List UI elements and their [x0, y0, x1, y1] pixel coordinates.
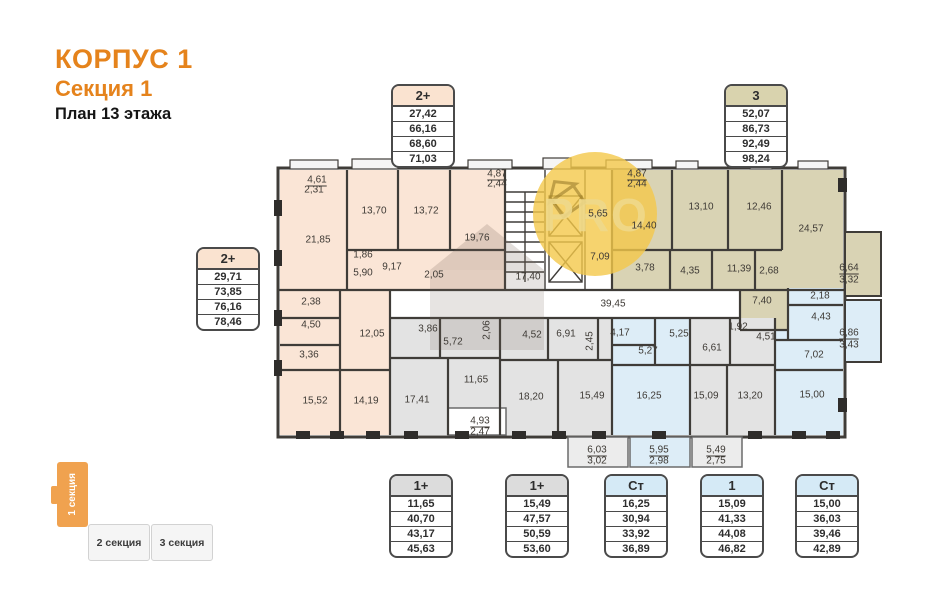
room-area-label: 2,47 — [470, 427, 490, 438]
room-area-label: 3,43 — [839, 340, 859, 351]
room-area-label: 7,40 — [752, 296, 772, 307]
room-area-label: 3,78 — [635, 263, 655, 274]
apartment-box-1: 1 15,09 41,33 44,08 46,82 — [700, 474, 764, 558]
section-nav-item-3[interactable]: 3 секция — [151, 524, 213, 561]
room-area-label: 24,57 — [798, 224, 823, 235]
area-value: 71,03 — [393, 152, 453, 166]
room-area-label: 4,51 — [756, 332, 776, 343]
area-value: 41,33 — [702, 512, 762, 527]
room-area-label: 6,61 — [702, 343, 722, 354]
room-area-label: 9,17 — [382, 262, 402, 273]
room-area-label: 5,95 — [649, 445, 669, 456]
room-area-label: 2,06 — [482, 320, 493, 340]
title-block: КОРПУС 1 Секция 1 План 13 этажа — [55, 44, 193, 123]
room-area-label: 6,03 — [587, 445, 607, 456]
room-area-label: 5,25 — [669, 329, 689, 340]
area-value: 36,03 — [797, 512, 857, 527]
area-value: 92,49 — [726, 137, 786, 152]
area-value: 40,70 — [391, 512, 451, 527]
area-value: 42,89 — [797, 542, 857, 556]
room-area-label: 11,39 — [727, 264, 752, 275]
room-area-label: 5,27 — [638, 346, 658, 357]
area-value: 43,17 — [391, 527, 451, 542]
room-area-label: 5,72 — [443, 337, 463, 348]
room-area-label: 13,70 — [361, 206, 386, 217]
room-area-label: 2,44 — [627, 179, 647, 190]
room-area-label: 4,52 — [522, 330, 542, 341]
room-area-label: 13,20 — [737, 391, 762, 402]
apartment-box-studio-b: Ст 15,00 36,03 39,46 42,89 — [795, 474, 859, 558]
room-area-label: 7,02 — [804, 350, 824, 361]
room-area-label: 2,38 — [301, 297, 321, 308]
floor-title: План 13 этажа — [55, 105, 193, 123]
room-area-label: 15,52 — [302, 396, 327, 407]
area-value: 29,71 — [198, 270, 258, 285]
area-value: 45,63 — [391, 542, 451, 556]
area-value: 98,24 — [726, 152, 786, 166]
room-area-label: 3,36 — [299, 350, 319, 361]
area-value: 39,46 — [797, 527, 857, 542]
room-area-label: 13,72 — [413, 206, 438, 217]
area-value: 52,07 — [726, 107, 786, 122]
apartment-type-label: 2+ — [198, 249, 258, 270]
apartment-box-studio-a: Ст 16,25 30,94 33,92 36,89 — [604, 474, 668, 558]
apartment-box-1plus-b: 1+ 15,49 47,57 50,59 53,60 — [505, 474, 569, 558]
room-area-label: 2,75 — [706, 456, 726, 467]
section-nav-label: 3 секция — [160, 537, 205, 549]
apartment-box-2plus-left: 2+ 29,71 73,85 76,16 78,46 — [196, 247, 260, 331]
room-area-label: 6,86 — [839, 328, 859, 339]
room-area-label: 12,05 — [359, 329, 384, 340]
area-value: 68,60 — [393, 137, 453, 152]
room-area-label: 2,45 — [585, 331, 596, 351]
room-area-label: 15,49 — [579, 391, 604, 402]
apartment-box-1plus-a: 1+ 11,65 40,70 43,17 45,63 — [389, 474, 453, 558]
area-value: 76,16 — [198, 300, 258, 315]
room-area-label: 14,40 — [631, 221, 656, 232]
section-nav-item-2[interactable]: 2 секция — [88, 524, 150, 561]
room-area-label: 2,31 — [304, 185, 324, 196]
apartment-type-label: 2+ — [393, 86, 453, 107]
page: PRO 4,612,3121,8513,7013,7219,761,865,90… — [0, 0, 941, 600]
room-area-label: 15,09 — [693, 391, 718, 402]
room-area-label: 19,76 — [464, 233, 489, 244]
area-value: 66,16 — [393, 122, 453, 137]
room-area-label: 2,98 — [649, 456, 669, 467]
area-value: 86,73 — [726, 122, 786, 137]
room-area-label: 3,02 — [587, 456, 607, 467]
room-area-label: 3,86 — [418, 324, 438, 335]
area-value: 73,85 — [198, 285, 258, 300]
room-area-label: 2,18 — [810, 291, 830, 302]
section-nav-label: 1 секция — [67, 473, 78, 516]
area-value: 15,09 — [702, 497, 762, 512]
area-value: 47,57 — [507, 512, 567, 527]
room-area-label: 4,43 — [811, 312, 831, 323]
apartment-type-label: 1+ — [507, 476, 567, 497]
apartment-type-label: 3 — [726, 86, 786, 107]
apartment-type-label: 1 — [702, 476, 762, 497]
room-area-label: 5,49 — [706, 445, 726, 456]
area-value: 33,92 — [606, 527, 666, 542]
room-area-label: 39,45 — [600, 299, 625, 310]
area-value: 30,94 — [606, 512, 666, 527]
area-value: 46,82 — [702, 542, 762, 556]
area-value: 11,65 — [391, 497, 451, 512]
area-value: 36,89 — [606, 542, 666, 556]
room-area-label: 4,17 — [610, 328, 630, 339]
section-nav-label: 2 секция — [97, 537, 142, 549]
area-value: 15,00 — [797, 497, 857, 512]
room-area-label: 2,44 — [487, 179, 507, 190]
room-area-label: 4,50 — [301, 320, 321, 331]
room-area-label: 7,09 — [590, 252, 610, 263]
apartment-box-3: 3 52,07 86,73 92,49 98,24 — [724, 84, 788, 168]
room-area-label: 11,65 — [464, 375, 489, 386]
apartment-box-2plus-top: 2+ 27,42 66,16 68,60 71,03 — [391, 84, 455, 168]
room-area-label: 2,05 — [424, 270, 444, 281]
room-area-label: 6,64 — [839, 263, 859, 274]
room-area-label: 5,90 — [353, 268, 373, 279]
room-area-label: 1,86 — [353, 250, 373, 261]
area-value: 44,08 — [702, 527, 762, 542]
room-area-label: 13,10 — [688, 202, 713, 213]
apartment-type-label: 1+ — [391, 476, 451, 497]
apartment-type-label: Ст — [797, 476, 857, 497]
room-area-label: 2,68 — [759, 266, 779, 277]
area-value: 78,46 — [198, 315, 258, 329]
section-title: Секция 1 — [55, 77, 193, 102]
area-value: 16,25 — [606, 497, 666, 512]
room-area-label: 6,91 — [556, 329, 576, 340]
area-value: 53,60 — [507, 542, 567, 556]
room-area-label: 5,65 — [588, 209, 608, 220]
room-area-label: 4,35 — [680, 266, 700, 277]
room-area-label: 17,40 — [515, 272, 540, 283]
room-area-label: 18,20 — [518, 392, 543, 403]
room-area-label: 16,25 — [636, 391, 661, 402]
building-title: КОРПУС 1 — [55, 44, 193, 74]
room-area-label: 1,92 — [728, 322, 748, 333]
area-value: 27,42 — [393, 107, 453, 122]
room-area-label: 3,32 — [839, 275, 859, 286]
room-area-label: 17,41 — [404, 395, 429, 406]
room-area-label: 15,00 — [799, 390, 824, 401]
area-value: 50,59 — [507, 527, 567, 542]
apartment-type-label: Ст — [606, 476, 666, 497]
room-area-label: 14,19 — [353, 396, 378, 407]
room-area-label: 21,85 — [305, 235, 330, 246]
room-area-label: 4,93 — [470, 416, 490, 427]
area-value: 15,49 — [507, 497, 567, 512]
section-nav-item-1[interactable]: 1 секция — [57, 462, 88, 527]
room-area-label: 12,46 — [746, 202, 771, 213]
